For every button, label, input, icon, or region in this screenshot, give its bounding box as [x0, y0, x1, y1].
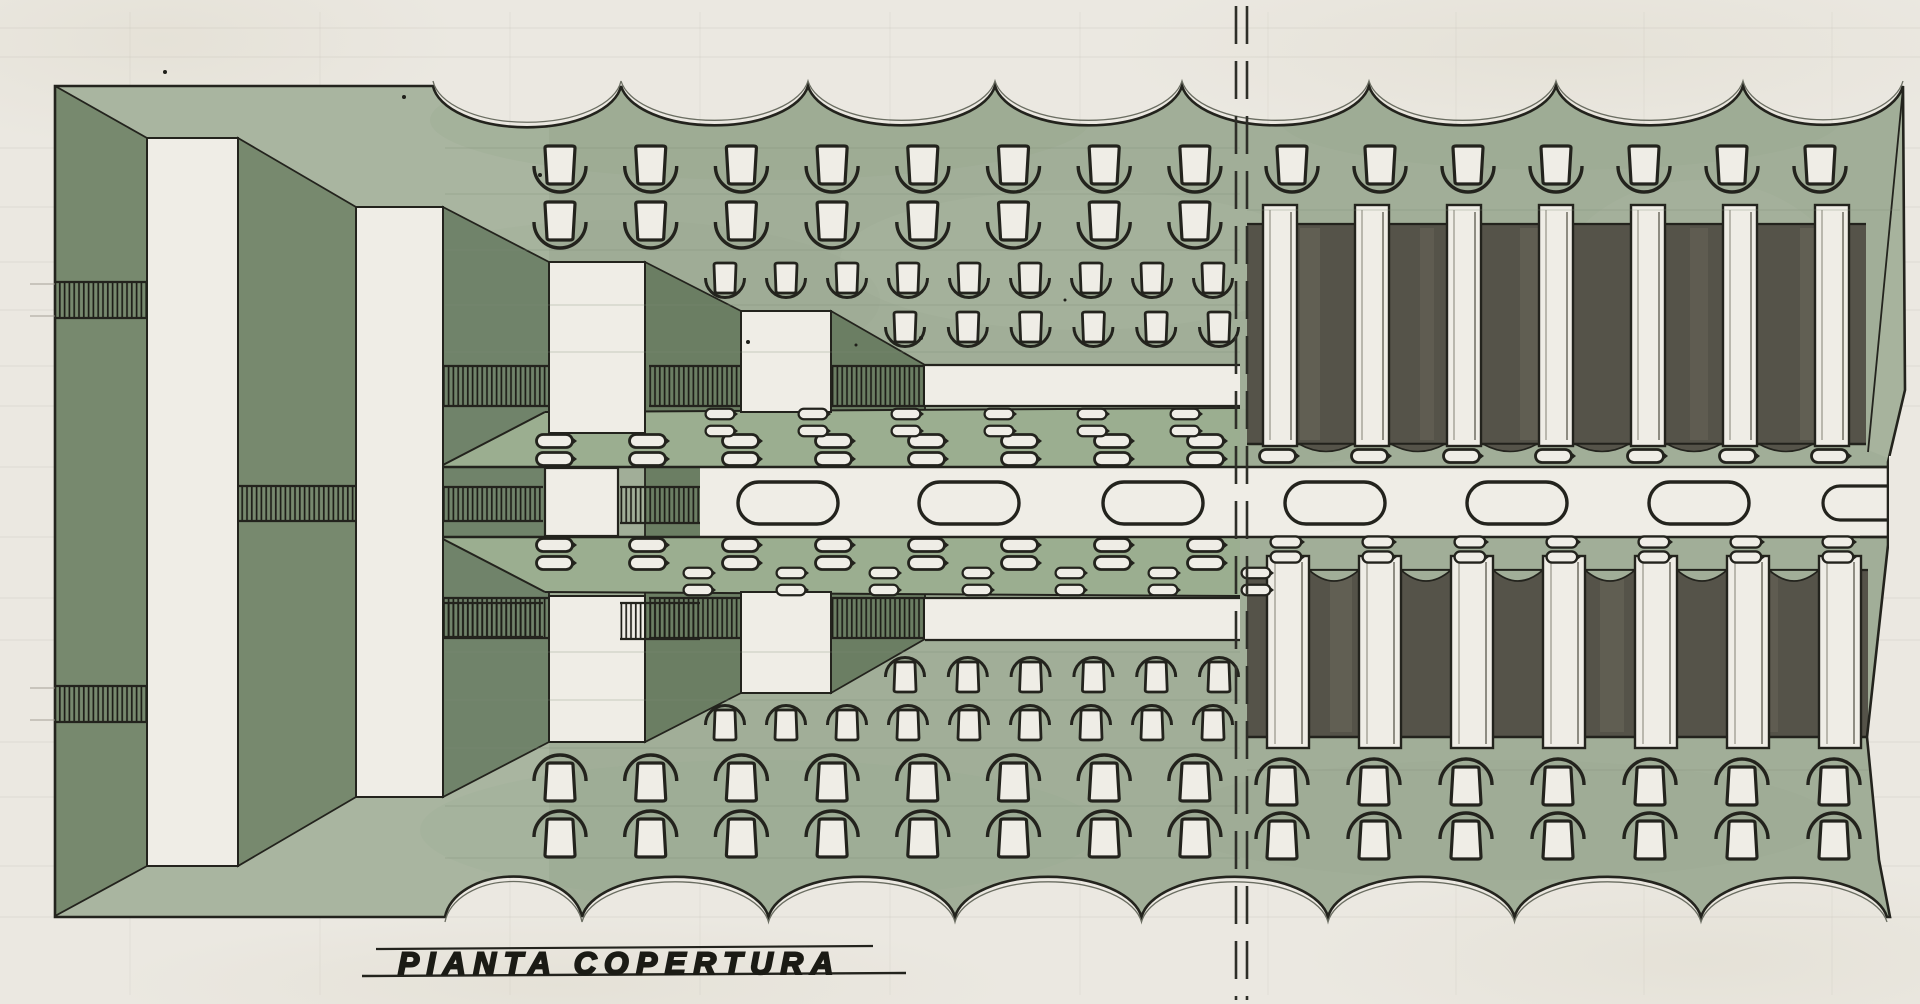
svg-text:PIANTA COPERTURA: PIANTA COPERTURA: [398, 945, 841, 981]
